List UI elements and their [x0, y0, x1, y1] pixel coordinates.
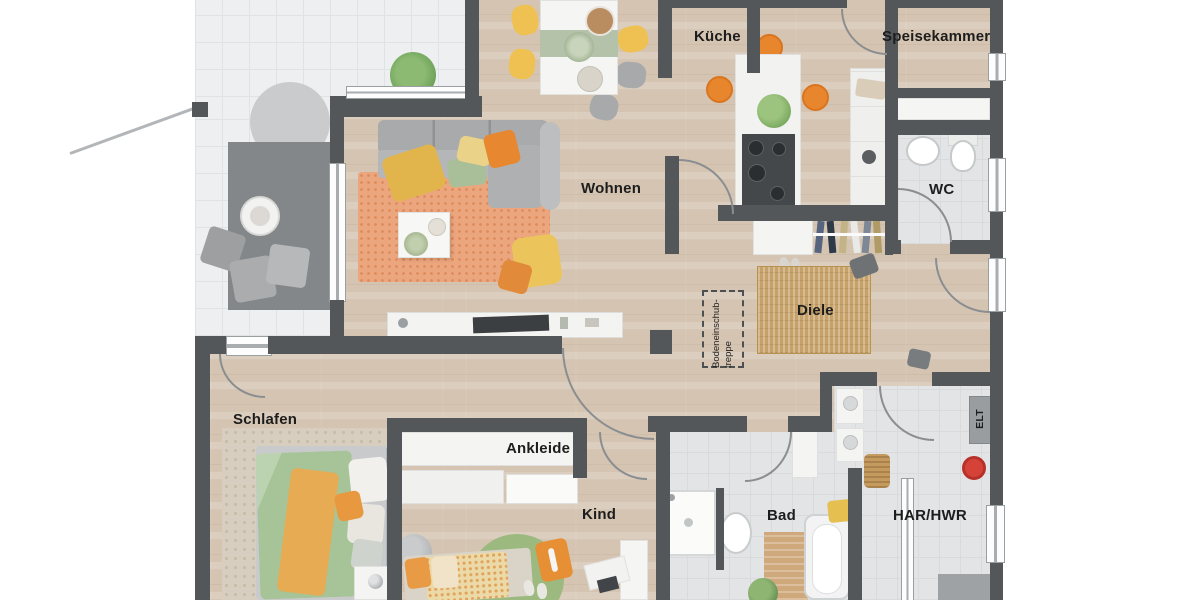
room-label-ankleide: Ankleide [506, 440, 570, 457]
dining-chair [615, 61, 647, 90]
wall [885, 0, 1003, 8]
kettle [862, 150, 876, 164]
bath-cabinet [792, 424, 818, 478]
wall [573, 418, 587, 478]
wall [387, 418, 577, 432]
wall [932, 372, 990, 386]
wall [898, 120, 990, 135]
burner [748, 164, 766, 182]
window [988, 53, 1006, 81]
bowl [428, 218, 446, 236]
wall [330, 300, 344, 338]
nightstand-lamp [368, 574, 383, 589]
wall [885, 240, 901, 254]
outdoor-tray [250, 206, 270, 226]
wc-toilet [950, 140, 976, 172]
floor-plan: Bodeneinschub- treppe [0, 0, 1200, 600]
sofa-armrest [540, 122, 560, 210]
table-plant [404, 232, 428, 256]
window [346, 86, 470, 99]
window [986, 505, 1005, 563]
attic-stairs-line1: Bodeneinschub- [711, 290, 723, 368]
sideboard-deco [398, 318, 408, 328]
pillow [404, 556, 432, 589]
tv [473, 315, 550, 334]
wall [788, 416, 822, 432]
room-label-har-hwr: HAR/HWR [893, 507, 967, 524]
room-label-diele: Diele [797, 302, 834, 319]
wall [885, 88, 990, 98]
sideboard-deco [585, 318, 599, 327]
wall [465, 0, 479, 112]
washer-door [843, 396, 858, 411]
bath-plant [748, 578, 778, 600]
laundry-basket [864, 454, 890, 488]
clothes-rail [813, 233, 885, 236]
room-label-bad: Bad [767, 507, 796, 524]
wc-vanity [893, 98, 990, 120]
plate [577, 66, 603, 92]
centerpiece [564, 32, 594, 62]
window [988, 158, 1006, 212]
window [226, 336, 272, 356]
attic-stairs-line2: treppe [723, 290, 735, 368]
shower-drain [684, 518, 693, 527]
room-label-speisekammer: Speisekammer [882, 28, 990, 45]
wall [330, 117, 344, 163]
room-label-kind: Kind [582, 506, 616, 523]
wall [658, 0, 672, 78]
outdoor-cushion [265, 243, 310, 288]
room-label-wc: WC [929, 181, 954, 198]
sideboard-deco [560, 317, 568, 329]
island-plant [757, 94, 791, 128]
har-cabinet [938, 574, 990, 600]
room-label-schlafen: Schlafen [233, 411, 297, 428]
room-label-wohnen: Wohnen [581, 180, 641, 197]
slippers [536, 583, 547, 600]
burner [772, 142, 786, 156]
har-partition [901, 478, 914, 600]
wall [656, 432, 670, 600]
wall [747, 0, 760, 73]
bathtub-basin [812, 524, 842, 594]
terrace-slider-window [329, 163, 346, 302]
wall [648, 416, 747, 432]
burner [770, 186, 785, 201]
wall [848, 468, 862, 600]
wall [820, 386, 832, 432]
bar-stool [706, 76, 733, 103]
awning-arm [69, 106, 196, 155]
burner [748, 140, 764, 156]
wc-sink [906, 136, 940, 166]
attic-stairs-label: Bodeneinschub- treppe [702, 290, 744, 368]
plate [585, 6, 615, 36]
robot-vacuum [962, 456, 986, 480]
bath-sink [720, 512, 752, 554]
awning-post [192, 102, 208, 117]
wall [665, 156, 679, 254]
attic-stairs-outline: Bodeneinschub- treppe [702, 290, 744, 368]
dryer-door [843, 435, 858, 450]
bar-stool [802, 84, 829, 111]
pillow [431, 555, 459, 589]
wall [716, 488, 724, 570]
wall [718, 205, 893, 221]
wall [195, 336, 210, 600]
pillow [333, 490, 364, 523]
room-label-elt: ELT [974, 389, 986, 449]
wall [330, 96, 482, 117]
wardrobe-unit [400, 470, 504, 504]
wall [268, 336, 562, 354]
room-label-kueche: Küche [694, 28, 741, 45]
wall [820, 372, 877, 386]
wardrobe-cabinet [753, 219, 813, 255]
wardrobe-unit [506, 474, 578, 504]
wall [387, 432, 402, 600]
entry-door [988, 258, 1006, 312]
